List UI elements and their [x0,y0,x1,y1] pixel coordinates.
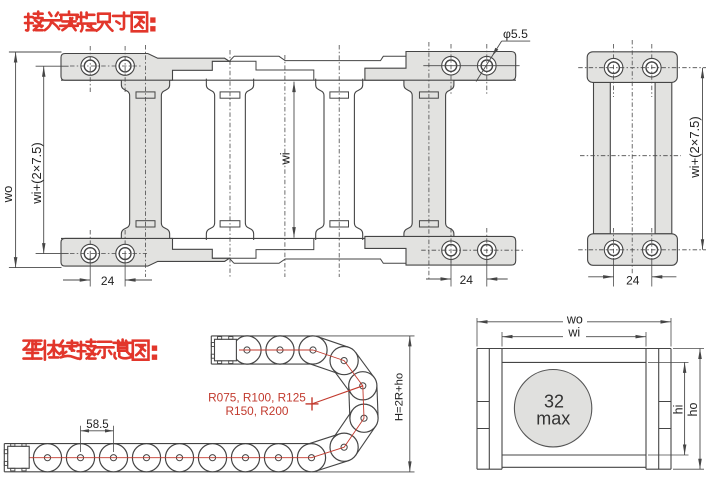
svg-text:wo: wo [0,186,15,204]
svg-text:24: 24 [626,273,640,287]
svg-text:max: max [536,408,570,428]
svg-text:wi+(2×7.5): wi+(2×7.5) [687,116,702,178]
svg-text:wi: wi [567,325,580,339]
svg-text:hi: hi [672,405,686,415]
svg-text:φ5.5: φ5.5 [503,27,528,41]
svg-text:wi: wi [278,152,293,165]
svg-text:58.5: 58.5 [86,419,108,431]
svg-text:R075, R100, R125: R075, R100, R125 [208,390,306,404]
svg-text:H=2R+ho: H=2R+ho [394,373,406,421]
svg-text:wo: wo [566,313,583,327]
svg-text:24: 24 [101,274,115,288]
svg-text:wi+(2×7.5): wi+(2×7.5) [29,142,44,204]
svg-text:24: 24 [460,273,474,287]
svg-text:ho: ho [686,403,700,417]
svg-text:R150, R200: R150, R200 [226,404,289,418]
